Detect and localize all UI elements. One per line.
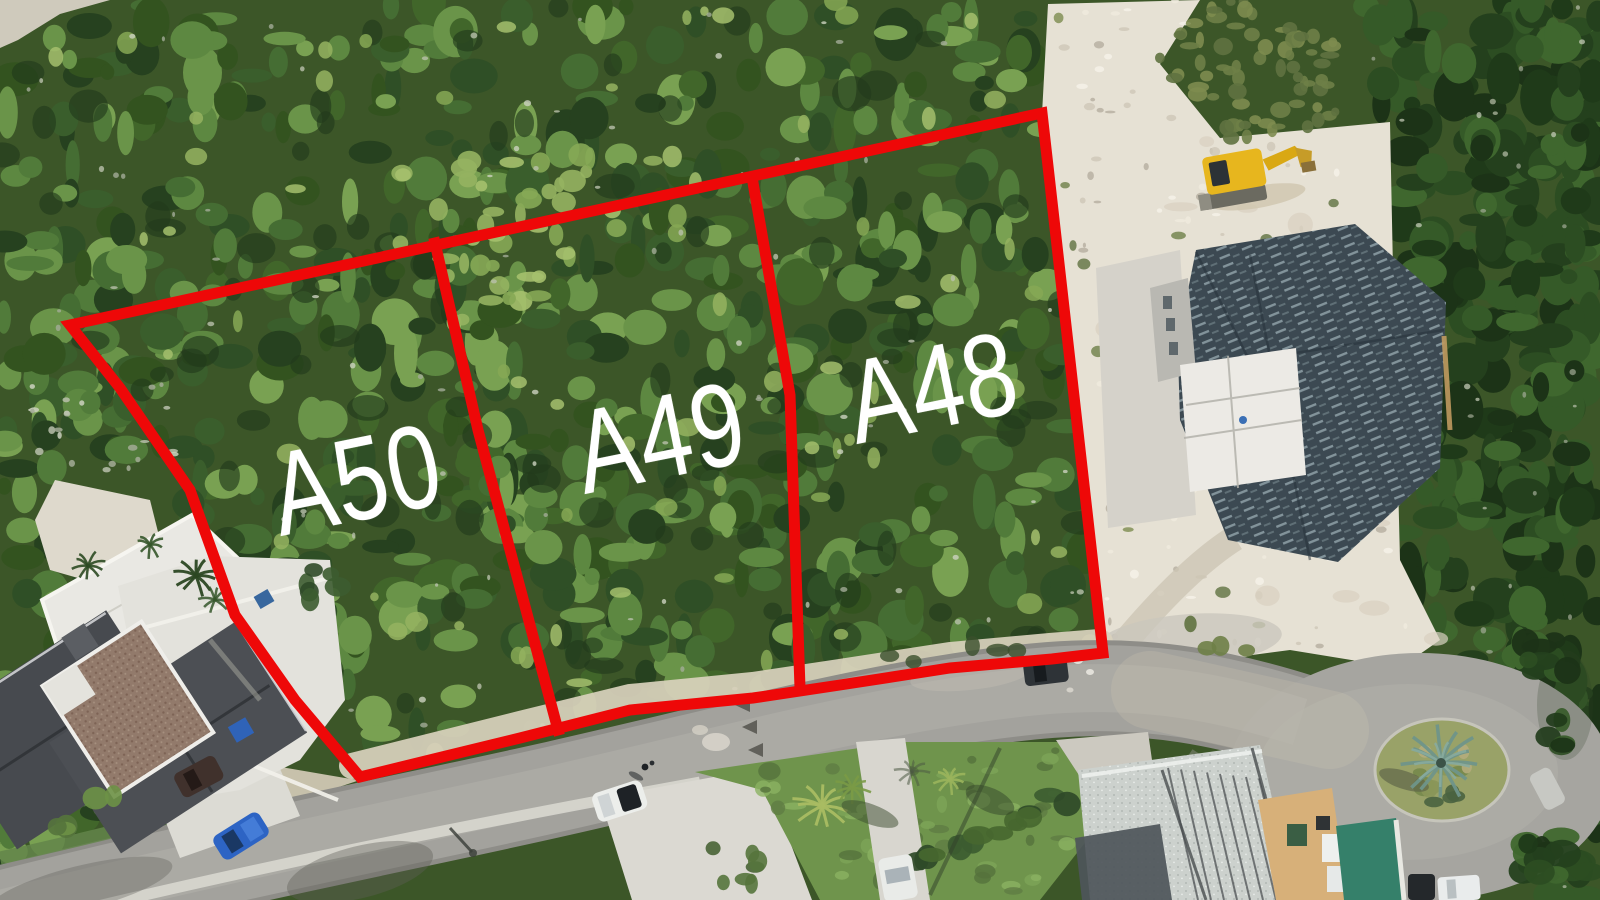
aerial-lot-photo: A50 A49 A48 — [0, 0, 1600, 900]
lot-label-a50: A50 — [261, 405, 451, 555]
culdesac-island — [1375, 719, 1509, 821]
aerial-scene — [0, 0, 1600, 900]
dark-van — [1408, 874, 1435, 900]
white-truck — [1437, 875, 1481, 900]
lot-label-a49: A49 — [565, 363, 755, 513]
lot-label-a48: A48 — [837, 313, 1027, 463]
